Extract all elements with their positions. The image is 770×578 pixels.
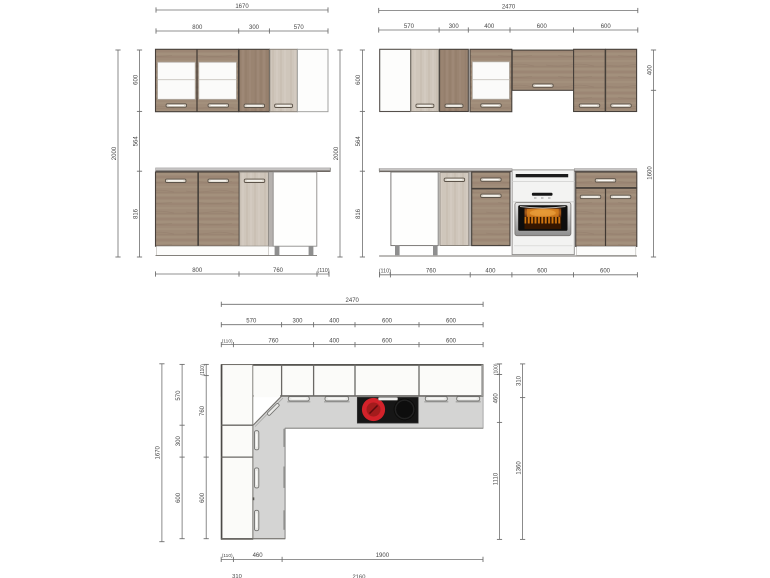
svg-text:2470: 2470 — [502, 4, 516, 10]
svg-text:1360: 1360 — [516, 461, 522, 475]
svg-text:(100): (100) — [493, 363, 499, 375]
svg-text:460: 460 — [253, 553, 264, 559]
svg-text:570: 570 — [294, 25, 305, 31]
svg-text:816: 816 — [356, 208, 362, 219]
svg-text:300: 300 — [292, 319, 303, 325]
svg-text:2470: 2470 — [346, 298, 360, 304]
svg-text:816: 816 — [133, 208, 139, 219]
svg-text:600: 600 — [537, 269, 548, 275]
svg-text:300: 300 — [176, 436, 182, 447]
svg-text:1600: 1600 — [647, 166, 653, 180]
svg-text:600: 600 — [176, 492, 182, 503]
svg-text:2000: 2000 — [334, 146, 340, 160]
svg-text:(110): (110) — [200, 364, 206, 376]
svg-text:(110): (110) — [379, 269, 391, 275]
svg-text:300: 300 — [249, 25, 260, 31]
svg-text:1670: 1670 — [235, 4, 249, 10]
svg-text:800: 800 — [192, 268, 203, 274]
svg-text:600: 600 — [600, 269, 611, 275]
svg-text:1900: 1900 — [376, 553, 390, 559]
svg-text:2160: 2160 — [353, 575, 366, 578]
svg-text:600: 600 — [133, 74, 139, 85]
svg-text:570: 570 — [404, 24, 415, 30]
svg-text:400: 400 — [484, 24, 495, 30]
svg-text:760: 760 — [426, 269, 437, 275]
svg-text:1670: 1670 — [156, 445, 162, 459]
svg-text:564: 564 — [133, 136, 139, 147]
svg-text:564: 564 — [356, 136, 362, 147]
svg-text:2000: 2000 — [112, 146, 118, 160]
svg-text:400: 400 — [485, 269, 496, 275]
svg-text:(110): (110) — [222, 338, 233, 344]
svg-text:400: 400 — [647, 65, 653, 76]
svg-text:310: 310 — [232, 574, 242, 578]
svg-text:600: 600 — [537, 24, 548, 30]
svg-text:400: 400 — [329, 319, 340, 325]
svg-text:1110: 1110 — [493, 472, 499, 485]
svg-text:400: 400 — [329, 338, 340, 344]
svg-text:600: 600 — [601, 24, 612, 30]
svg-text:310: 310 — [516, 375, 522, 386]
svg-text:(110): (110) — [317, 268, 329, 274]
svg-text:600: 600 — [200, 492, 206, 503]
svg-text:760: 760 — [268, 338, 279, 344]
svg-text:570: 570 — [246, 319, 257, 325]
svg-text:600: 600 — [382, 319, 393, 325]
svg-text:760: 760 — [200, 405, 206, 416]
svg-text:600: 600 — [446, 338, 457, 344]
svg-text:760: 760 — [273, 268, 284, 274]
svg-text:(110): (110) — [222, 553, 233, 559]
svg-text:460: 460 — [493, 393, 499, 404]
svg-text:800: 800 — [192, 25, 203, 31]
svg-text:600: 600 — [382, 338, 393, 344]
svg-text:570: 570 — [176, 390, 182, 401]
svg-text:300: 300 — [449, 24, 460, 30]
svg-text:600: 600 — [446, 319, 457, 325]
svg-text:600: 600 — [356, 74, 362, 85]
